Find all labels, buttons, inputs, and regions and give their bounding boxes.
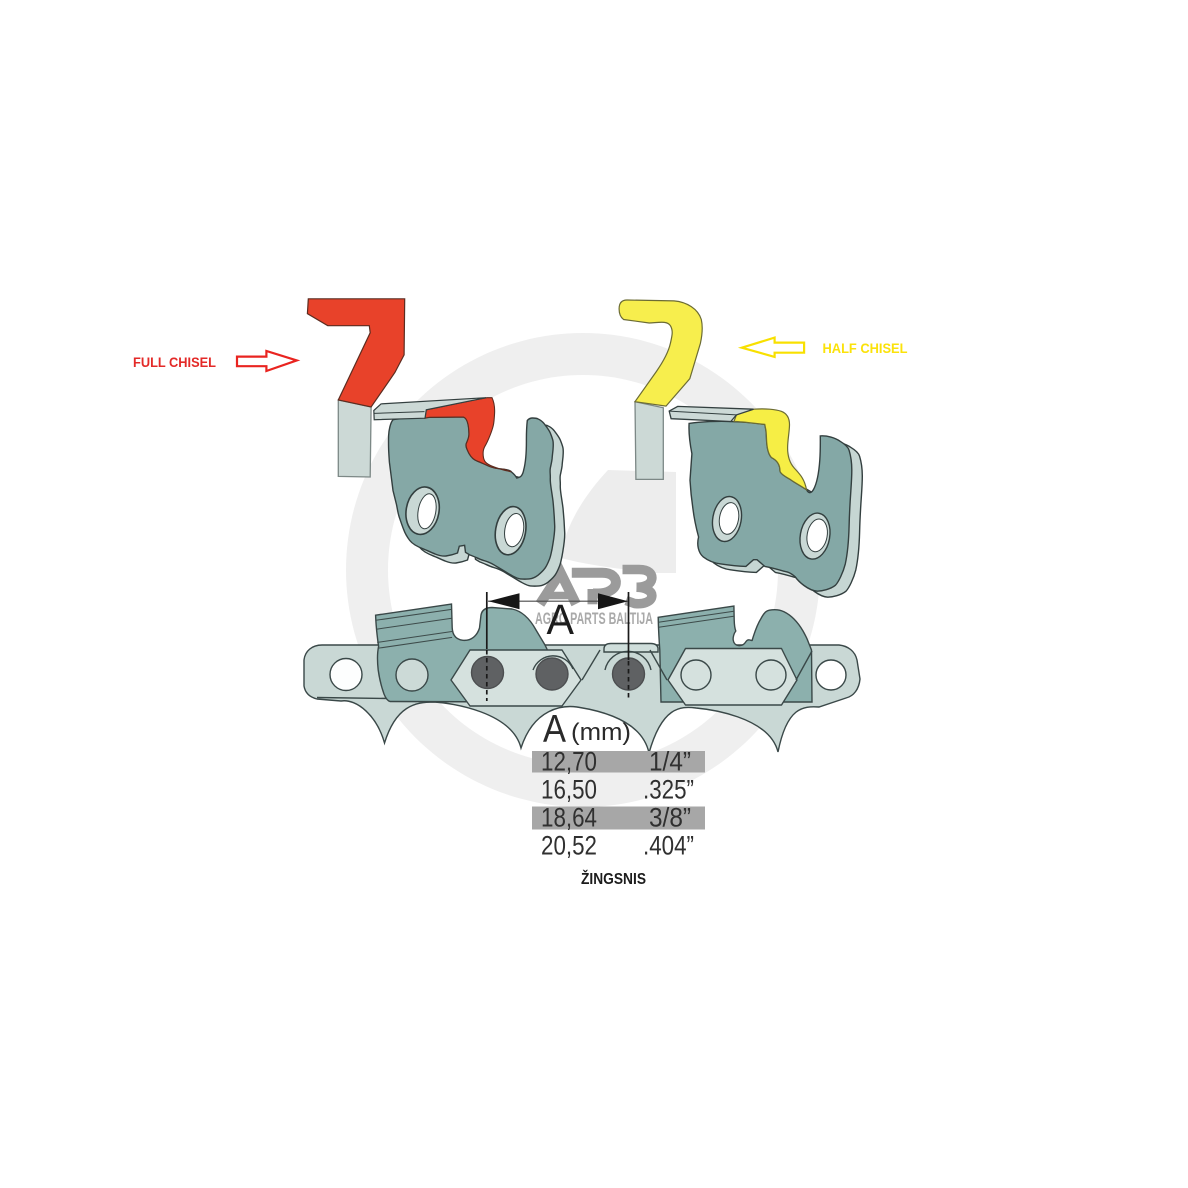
svg-text:18,64: 18,64 [541,803,597,833]
svg-text:A: A [543,708,566,751]
svg-text:ŽINGSNIS: ŽINGSNIS [581,869,646,888]
svg-text:(mm): (mm) [571,719,631,746]
svg-text:.325”: .325” [643,775,694,805]
svg-text:A: A [547,597,575,644]
svg-text:FULL CHISEL: FULL CHISEL [133,354,216,370]
svg-text:.404”: .404” [643,831,694,861]
svg-text:12,70: 12,70 [541,747,597,777]
svg-text:20,52: 20,52 [541,831,597,861]
svg-text:HALF CHISEL: HALF CHISEL [823,340,908,356]
svg-text:1/4”: 1/4” [649,747,691,777]
svg-text:3/8”: 3/8” [649,803,691,833]
svg-text:16,50: 16,50 [541,775,597,805]
